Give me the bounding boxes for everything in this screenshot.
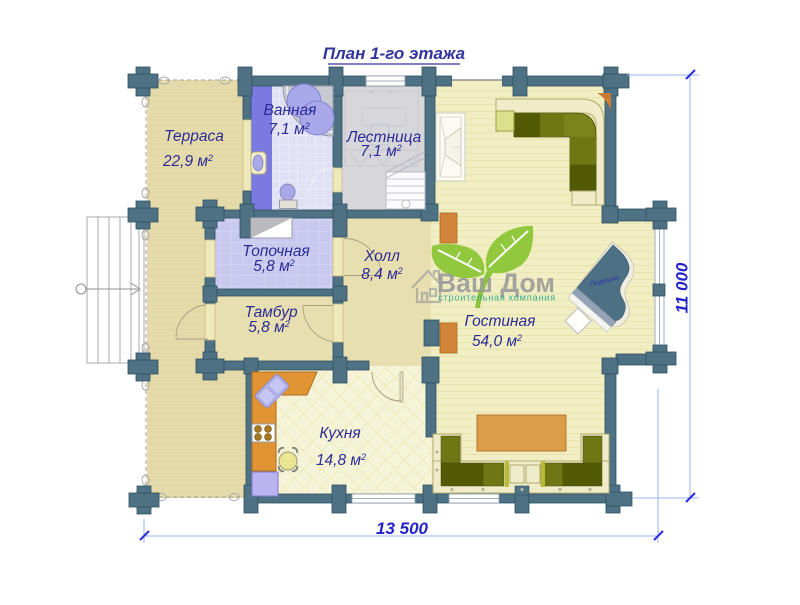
svg-text:7,1 м2: 7,1 м2: [360, 143, 402, 160]
svg-text:5,8 м2: 5,8 м2: [253, 258, 295, 275]
svg-text:22,9 м2: 22,9 м2: [162, 153, 213, 170]
svg-text:14,8 м2: 14,8 м2: [316, 452, 366, 469]
svg-text:План 1-го этажа: План 1-го этажа: [323, 44, 465, 63]
svg-text:Ванная: Ванная: [264, 102, 317, 119]
svg-text:5,8 м2: 5,8 м2: [248, 319, 290, 336]
svg-text:8,4 м2: 8,4 м2: [361, 266, 403, 283]
svg-text:строительная компания: строительная компания: [438, 293, 556, 303]
svg-text:Гостиная: Гостиная: [465, 313, 536, 330]
svg-text:13 500: 13 500: [376, 519, 429, 538]
svg-text:7,1 м2: 7,1 м2: [268, 121, 310, 138]
svg-text:Кухня: Кухня: [319, 425, 360, 442]
svg-text:54,0 м2: 54,0 м2: [472, 333, 522, 350]
svg-text:Терраса: Терраса: [164, 128, 224, 145]
svg-text:11 000: 11 000: [673, 262, 692, 313]
svg-text:Холл: Холл: [363, 248, 400, 265]
